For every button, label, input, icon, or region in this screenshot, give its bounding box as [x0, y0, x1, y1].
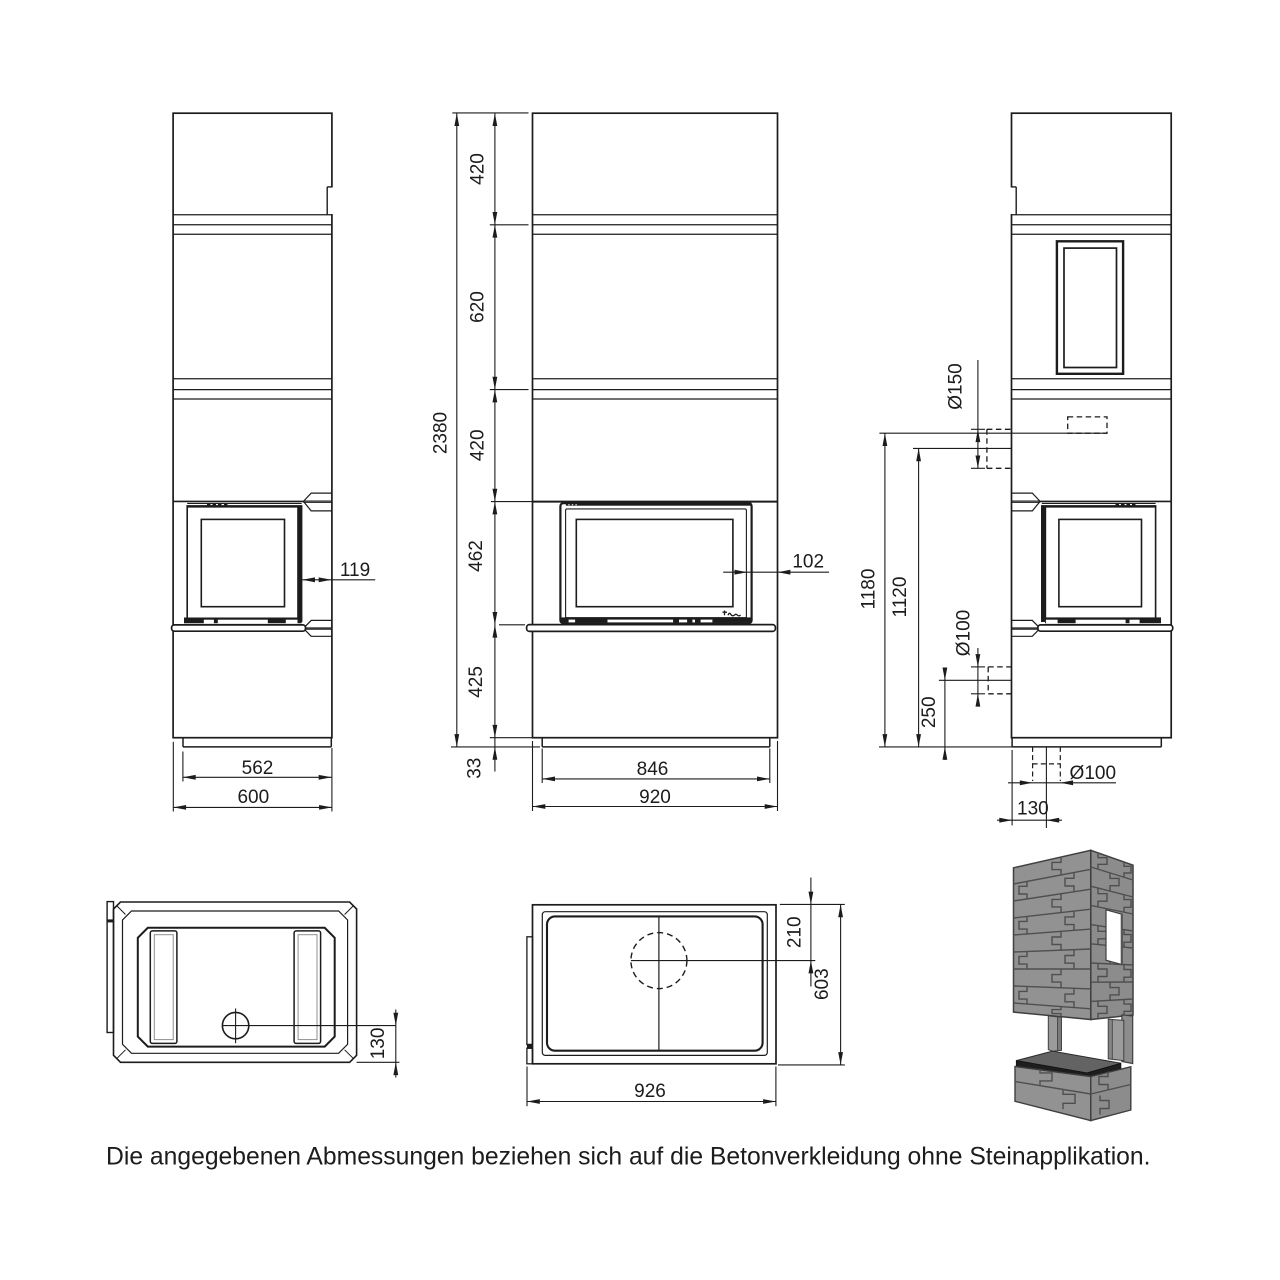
svg-text:Ø100: Ø100 [1070, 763, 1116, 784]
svg-text:926: 926 [634, 1081, 666, 1102]
svg-text:Die angegebenen Abmessungen be: Die angegebenen Abmessungen beziehen sic… [106, 1144, 1151, 1171]
svg-text:462: 462 [466, 540, 487, 572]
svg-text:1180: 1180 [859, 569, 880, 610]
svg-text:420: 420 [467, 429, 488, 461]
svg-text:600: 600 [237, 787, 269, 808]
svg-text:Ø100: Ø100 [954, 610, 975, 656]
svg-text:920: 920 [639, 787, 671, 808]
svg-text:130: 130 [1017, 799, 1049, 820]
svg-text:210: 210 [784, 916, 805, 948]
svg-text:102: 102 [792, 551, 824, 572]
svg-text:119: 119 [340, 560, 370, 581]
svg-text:425: 425 [466, 666, 487, 698]
svg-text:620: 620 [467, 291, 488, 323]
svg-text:2380: 2380 [431, 412, 452, 454]
svg-text:562: 562 [242, 758, 274, 779]
svg-text:Ø150: Ø150 [946, 363, 967, 409]
svg-text:603: 603 [812, 968, 833, 1000]
svg-text:250: 250 [919, 696, 940, 728]
svg-text:33: 33 [465, 758, 486, 779]
svg-text:1120: 1120 [890, 577, 911, 618]
svg-text:130: 130 [368, 1028, 389, 1060]
svg-text:846: 846 [637, 759, 669, 780]
svg-text:420: 420 [467, 153, 488, 185]
